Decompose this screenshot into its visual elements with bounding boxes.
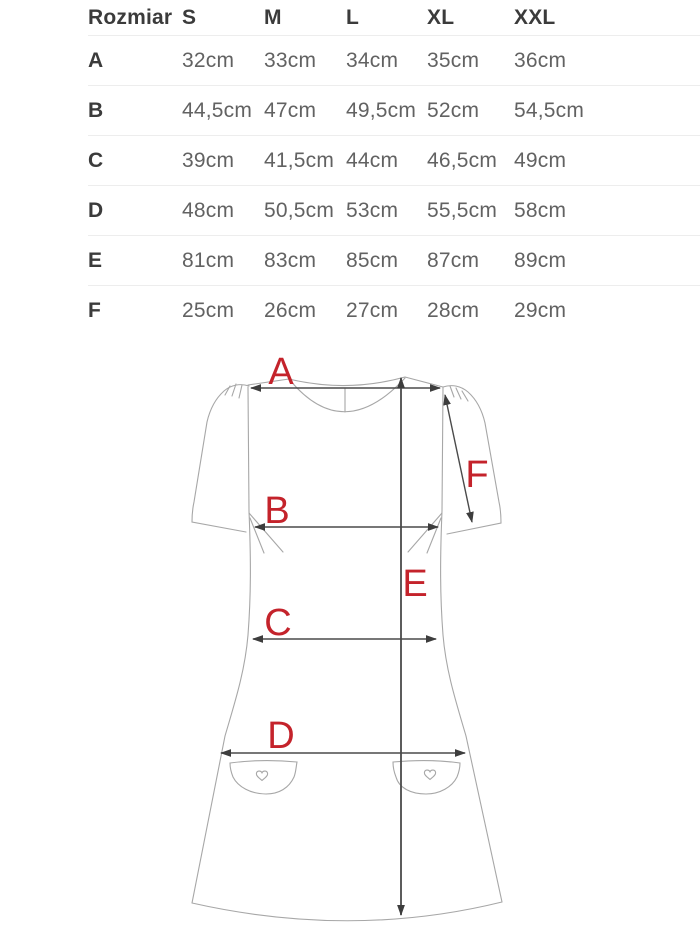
- size-value-cell: 28cm: [427, 299, 514, 323]
- size-column-m: M: [264, 6, 346, 30]
- row-label: D: [88, 199, 182, 223]
- row-label: F: [88, 299, 182, 323]
- heart-icon: [424, 770, 435, 779]
- left-pocket: [230, 761, 297, 794]
- size-value-cell: 55,5cm: [427, 199, 514, 223]
- size-value-cell: 29cm: [514, 299, 700, 323]
- dress-measurement-diagram: A B C D E F: [0, 350, 700, 933]
- size-table-header-label: Rozmiar: [88, 6, 182, 30]
- hem-line: [192, 902, 502, 921]
- table-row-d: D 48cm 50,5cm 53cm 55,5cm 58cm: [88, 185, 700, 235]
- size-value-cell: 87cm: [427, 249, 514, 273]
- table-row-c: C 39cm 41,5cm 44cm 46,5cm 49cm: [88, 135, 700, 185]
- measurement-label-e: E: [402, 563, 427, 605]
- size-value-cell: 53cm: [346, 199, 427, 223]
- size-value-cell: 34cm: [346, 49, 427, 73]
- right-shoulder-line: [405, 377, 443, 387]
- measurement-label-c: C: [264, 602, 291, 644]
- back-neckline: [289, 377, 405, 386]
- size-value-cell: 36cm: [514, 49, 700, 73]
- size-value-cell: 46,5cm: [427, 149, 514, 173]
- row-label: E: [88, 249, 182, 273]
- size-value-cell: 85cm: [346, 249, 427, 273]
- measurement-label-f: F: [465, 454, 488, 496]
- size-value-cell: 27cm: [346, 299, 427, 323]
- size-value-cell: 49,5cm: [346, 99, 427, 123]
- row-label: A: [88, 49, 182, 73]
- row-label: B: [88, 99, 182, 123]
- size-value-cell: 81cm: [182, 249, 264, 273]
- right-sleeve-gathers: [450, 386, 468, 401]
- size-column-xl: XL: [427, 6, 514, 30]
- size-value-cell: 49cm: [514, 149, 700, 173]
- size-column-l: L: [346, 6, 427, 30]
- size-value-cell: 39cm: [182, 149, 264, 173]
- size-value-cell: 83cm: [264, 249, 346, 273]
- dress-outline: [192, 377, 502, 921]
- size-value-cell: 33cm: [264, 49, 346, 73]
- size-value-cell: 52cm: [427, 99, 514, 123]
- size-value-cell: 47cm: [264, 99, 346, 123]
- table-row-f: F 25cm 26cm 27cm 28cm 29cm: [88, 285, 700, 335]
- size-table-header-row: Rozmiar S M L XL XXL: [88, 0, 700, 35]
- size-value-cell: 58cm: [514, 199, 700, 223]
- right-armhole-seams: [408, 513, 442, 553]
- size-value-cell: 54,5cm: [514, 99, 700, 123]
- left-side-seam: [192, 387, 250, 903]
- table-row-a: A 32cm 33cm 34cm 35cm 36cm: [88, 35, 700, 85]
- measurement-arrows: [221, 378, 472, 915]
- size-value-cell: 26cm: [264, 299, 346, 323]
- size-value-cell: 35cm: [427, 49, 514, 73]
- size-value-cell: 48cm: [182, 199, 264, 223]
- measurement-label-d: D: [267, 715, 294, 757]
- size-value-cell: 89cm: [514, 249, 700, 273]
- row-label: C: [88, 149, 182, 173]
- table-row-b: B 44,5cm 47cm 49,5cm 52cm 54,5cm: [88, 85, 700, 135]
- table-row-e: E 81cm 83cm 85cm 87cm 89cm: [88, 235, 700, 285]
- size-value-cell: 50,5cm: [264, 199, 346, 223]
- right-pocket: [393, 761, 460, 794]
- measurement-label-a: A: [268, 351, 294, 393]
- size-table: Rozmiar S M L XL XXL A 32cm 33cm 34cm 35…: [0, 0, 700, 335]
- size-column-xxl: XXL: [514, 6, 700, 30]
- measurement-label-b: B: [264, 490, 289, 532]
- size-value-cell: 44cm: [346, 149, 427, 173]
- heart-icon: [256, 771, 267, 780]
- size-value-cell: 32cm: [182, 49, 264, 73]
- size-value-cell: 44,5cm: [182, 99, 264, 123]
- size-value-cell: 41,5cm: [264, 149, 346, 173]
- size-value-cell: 25cm: [182, 299, 264, 323]
- left-sleeve: [192, 385, 249, 532]
- size-column-s: S: [182, 6, 264, 30]
